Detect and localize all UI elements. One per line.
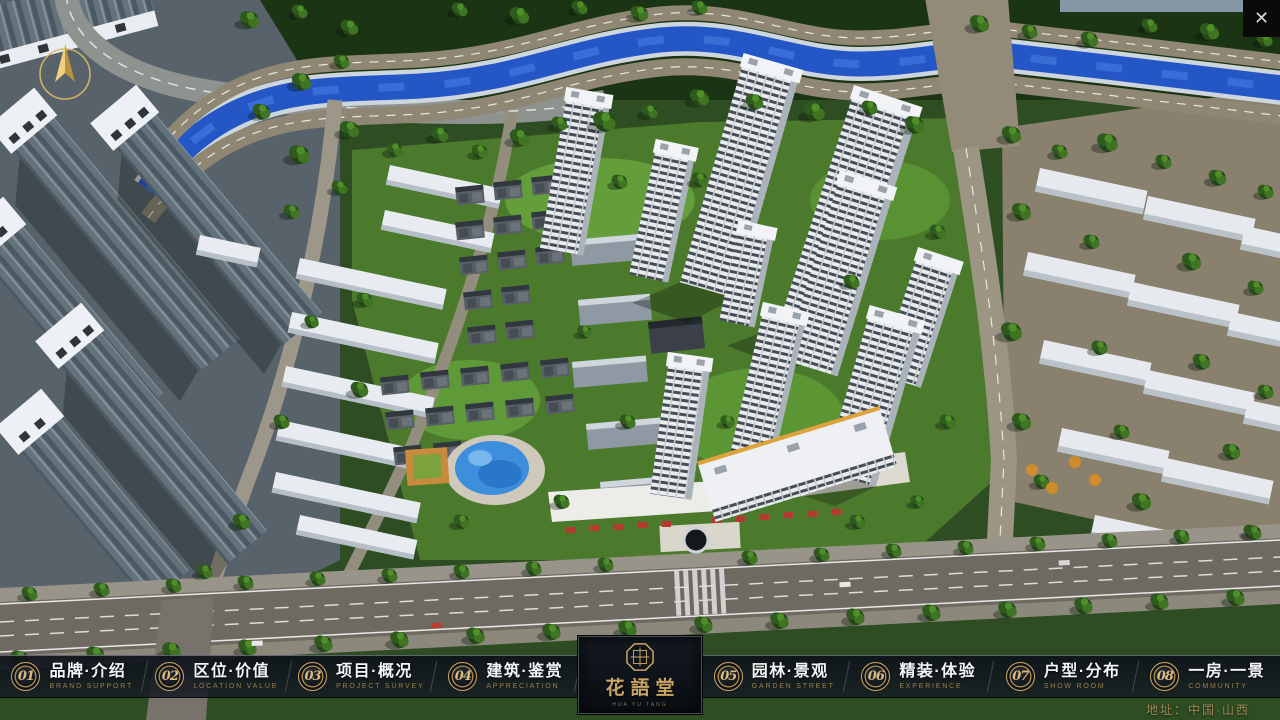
nav-item-label: 户型·分布 [1044,664,1121,680]
number-badge-icon: 01 [11,662,40,691]
nav-item-architecture[interactable]: 04 建筑·鉴赏 APPRECIATION [434,656,579,697]
seal-icon [626,643,654,671]
number-badge-icon: 02 [155,662,184,691]
masterplan-3d-view[interactable] [0,0,1280,720]
nav-item-location-value[interactable]: 02 区位·价值 LOCATION VALUE [145,656,290,697]
nav-item-subtitle: PROJECT SURVEY [336,683,424,690]
close-button[interactable]: ✕ [1243,0,1280,37]
number-badge-icon: 08 [1150,662,1179,691]
nav-item-label: 精装·体验 [899,664,976,680]
nav-group-right: 05 园林·景观 GARDEN STREET 06 精装·体验 EXPERIEN… [702,656,1280,697]
number-badge-icon: 05 [714,662,743,691]
nav-item-subtitle: APPRECIATION [486,683,559,690]
nav-item-label: 一房·一景 [1188,664,1265,680]
nav-item-label: 园林·景观 [752,664,829,680]
nav-item-project-survey[interactable]: 03 项目·概况 PROJECT SURVEY [289,656,434,697]
project-name-caption: HUA YU TANG [612,702,667,708]
nav-item-subtitle: GARDEN STREET [752,683,835,690]
nav-item-room-view[interactable]: 08 一房·一景 COMMUNITY [1136,656,1280,697]
address-text: 地址：中国·山西 [1146,701,1250,718]
nav-item-subtitle: SHOW ROOM [1044,683,1106,690]
number-badge-icon: 07 [1006,662,1035,691]
nav-item-interior-experience[interactable]: 06 精装·体验 EXPERIENCE [847,656,992,697]
project-name: 花語堂 [599,673,680,700]
nav-item-brand-intro[interactable]: 01 品牌·介绍 BRAND SUPPORT [0,656,145,697]
project-logo: 花語堂 HUA YU TANG [578,636,702,714]
number-badge-icon: 04 [448,662,477,691]
nav-item-label: 区位·价值 [193,664,270,680]
nav-group-left: 01 品牌·介绍 BRAND SUPPORT 02 区位·价值 LOCATION… [0,656,578,697]
nav-item-unit-layout[interactable]: 07 户型·分布 SHOW ROOM [991,656,1136,697]
nav-item-label: 项目·概况 [336,664,413,680]
number-badge-icon: 03 [298,662,327,691]
nav-item-subtitle: COMMUNITY [1188,683,1247,690]
nav-item-subtitle: LOCATION VALUE [193,683,278,690]
nav-item-label: 品牌·介绍 [49,664,126,680]
nav-item-label: 建筑·鉴赏 [486,664,563,680]
nav-item-subtitle: BRAND SUPPORT [49,683,133,690]
nav-item-subtitle: EXPERIENCE [899,683,962,690]
number-badge-icon: 06 [861,662,890,691]
aerial-render [0,0,1280,720]
nav-item-garden-landscape[interactable]: 05 园林·景观 GARDEN STREET [702,656,847,697]
